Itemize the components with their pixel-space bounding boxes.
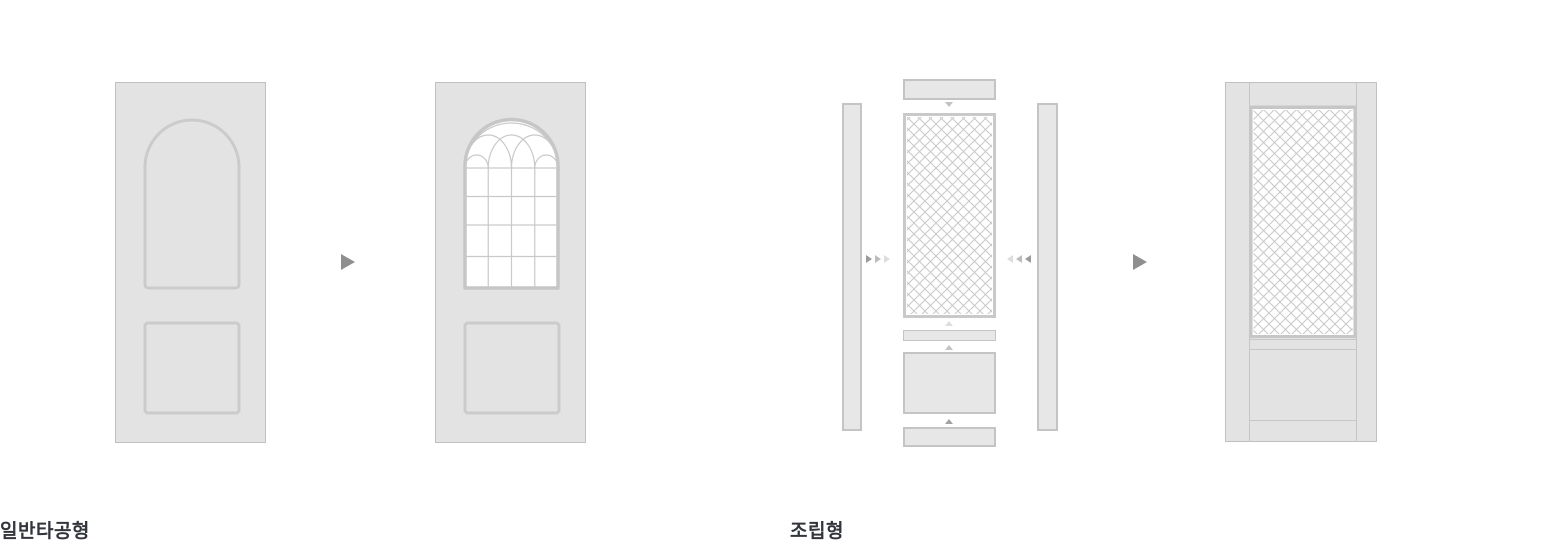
- left-triangle-light: [1007, 255, 1013, 263]
- right-arrow-icon: [1133, 254, 1147, 270]
- right-triangle-light: [884, 255, 890, 263]
- section-label-general-punched: 일반타공형: [0, 516, 90, 543]
- section-label-assembled: 조립형: [790, 516, 844, 543]
- up-arrow-icon: [945, 321, 953, 326]
- arched-window-door-illustration: [435, 82, 586, 443]
- up-arrow-icon: [945, 419, 953, 424]
- right-stile-part: [1037, 103, 1058, 431]
- mesh-panel-part: [903, 113, 996, 318]
- down-arrow-icon: [945, 102, 953, 107]
- assemble-right-arrows-icon: [866, 255, 890, 263]
- blank-panel-door-illustration: [115, 82, 266, 443]
- bottom-rail-part: [903, 427, 996, 447]
- bottom-panel-part: [903, 352, 996, 414]
- middle-rail-part: [903, 330, 996, 341]
- top-rail-part: [903, 79, 996, 100]
- left-triangle-dark: [1025, 255, 1031, 263]
- right-triangle-dark: [866, 255, 872, 263]
- left-stile-part: [842, 103, 862, 431]
- right-arrow-icon: [341, 254, 355, 270]
- assemble-left-arrows-icon: [1007, 255, 1031, 263]
- assembled-mesh-door-illustration: [1225, 82, 1377, 442]
- right-triangle-mid: [875, 255, 881, 263]
- up-arrow-icon: [945, 345, 953, 350]
- left-triangle-mid: [1016, 255, 1022, 263]
- door-types-infographic: 일반타공형 조립형: [0, 0, 1550, 545]
